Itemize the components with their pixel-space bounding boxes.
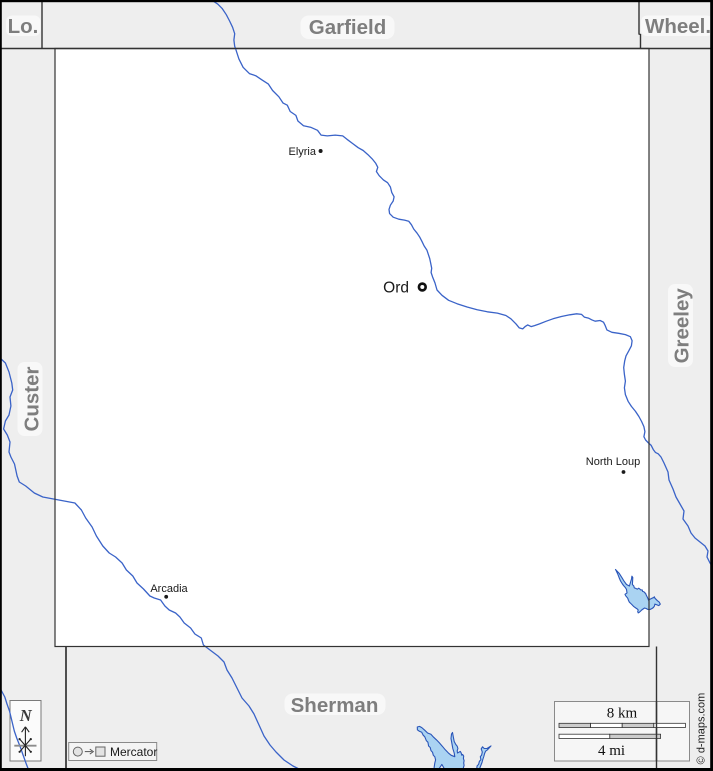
svg-text:Wheel.: Wheel. <box>645 15 711 38</box>
svg-text:Mercator: Mercator <box>110 745 157 759</box>
svg-text:4 mi: 4 mi <box>598 743 625 759</box>
svg-text:© d-maps.com: © d-maps.com <box>696 693 708 765</box>
svg-text:Greeley: Greeley <box>671 288 694 364</box>
svg-text:8 km: 8 km <box>607 706 638 722</box>
svg-text:Elyria: Elyria <box>288 146 316 158</box>
svg-text:North Loup: North Loup <box>586 456 640 468</box>
svg-text:Sherman: Sherman <box>291 694 379 717</box>
svg-text:Garfield: Garfield <box>309 16 386 39</box>
svg-text:Arcadia: Arcadia <box>150 583 188 595</box>
svg-text:Ord: Ord <box>383 280 409 297</box>
svg-text:Lo.: Lo. <box>8 15 39 38</box>
svg-text:Custer: Custer <box>21 367 44 432</box>
svg-text:N: N <box>19 706 33 725</box>
